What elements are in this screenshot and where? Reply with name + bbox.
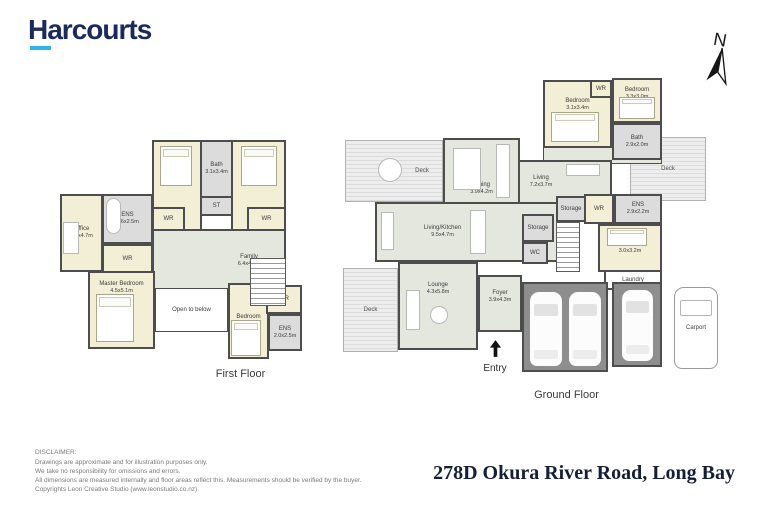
room-bath-first: Bath 3.1x3.4m	[200, 140, 233, 198]
bed-icon	[619, 97, 655, 119]
sofa-icon	[381, 212, 394, 250]
dining-table-icon	[453, 148, 481, 190]
car-icon	[569, 292, 601, 366]
room-wr-g1: WR	[590, 80, 612, 98]
room-storage-1: Storage	[556, 196, 586, 222]
room-open-to-below: Open to below	[155, 288, 228, 332]
bathtub-icon	[106, 198, 121, 234]
north-arrow-icon: N	[695, 27, 748, 90]
disclaimer-line: We take no responsibility for omissions …	[35, 467, 362, 476]
outdoor-table-icon	[378, 158, 402, 182]
stairs-icon	[250, 258, 286, 306]
room-st: ST	[200, 196, 233, 216]
disclaimer-line: Copyrights Leon Creative Studio (www.leo…	[35, 485, 362, 494]
bed-icon	[231, 320, 261, 356]
harcourts-logo: Harcourts	[28, 14, 151, 46]
bed-icon	[160, 146, 192, 186]
room-wr-2: WR	[247, 207, 286, 231]
car-icon	[530, 292, 562, 366]
kitchen-counter-icon	[496, 144, 510, 198]
room-storage-2: Storage	[522, 214, 554, 242]
entry-marker: Entry	[468, 340, 522, 374]
room-carport: Carport	[674, 287, 718, 369]
disclaimer-line: Drawings are approximate and for illustr…	[35, 458, 362, 467]
disclaimer-line: All dimensions are measured internally a…	[35, 476, 362, 485]
car-icon	[622, 290, 653, 361]
kitchen-island-icon	[470, 210, 486, 254]
room-bath-ground: Bath 2.9x2.0m	[612, 123, 662, 160]
room-wr-g2: WR	[584, 194, 614, 224]
desk-icon	[63, 222, 79, 254]
bed-icon	[96, 294, 134, 342]
coffee-table-icon	[430, 306, 448, 324]
svg-text:N: N	[712, 29, 728, 51]
disclaimer-title: DISCLAIMER:	[35, 448, 362, 457]
room-wr-1: WR	[152, 207, 185, 231]
ground-floor-title: Ground Floor	[514, 389, 619, 401]
entry-arrow-icon	[489, 340, 502, 357]
property-address: 278D Okura River Road, Long Bay	[433, 462, 735, 485]
first-floor-title: First Floor	[193, 368, 288, 380]
room-foyer: Foyer 3.9x4.3m	[478, 275, 522, 332]
deck-bottom-left: Deck	[343, 268, 398, 352]
bed-icon	[241, 146, 277, 186]
bed-icon	[607, 228, 647, 246]
room-wr-3: WR	[102, 244, 153, 274]
room-ens-2: ENS 2.0x2.5m	[268, 314, 302, 351]
entry-label: Entry	[468, 363, 522, 374]
logo-underline	[30, 46, 51, 50]
sofa-icon	[566, 164, 600, 176]
room-wc: WC	[522, 242, 548, 264]
stairs-icon	[556, 222, 580, 272]
room-ens-ground: ENS 2.9x2.2m	[614, 194, 662, 224]
bed-icon	[551, 112, 599, 142]
sofa-icon	[406, 290, 420, 330]
disclaimer-block: DISCLAIMER: Drawings are approximate and…	[35, 448, 362, 494]
